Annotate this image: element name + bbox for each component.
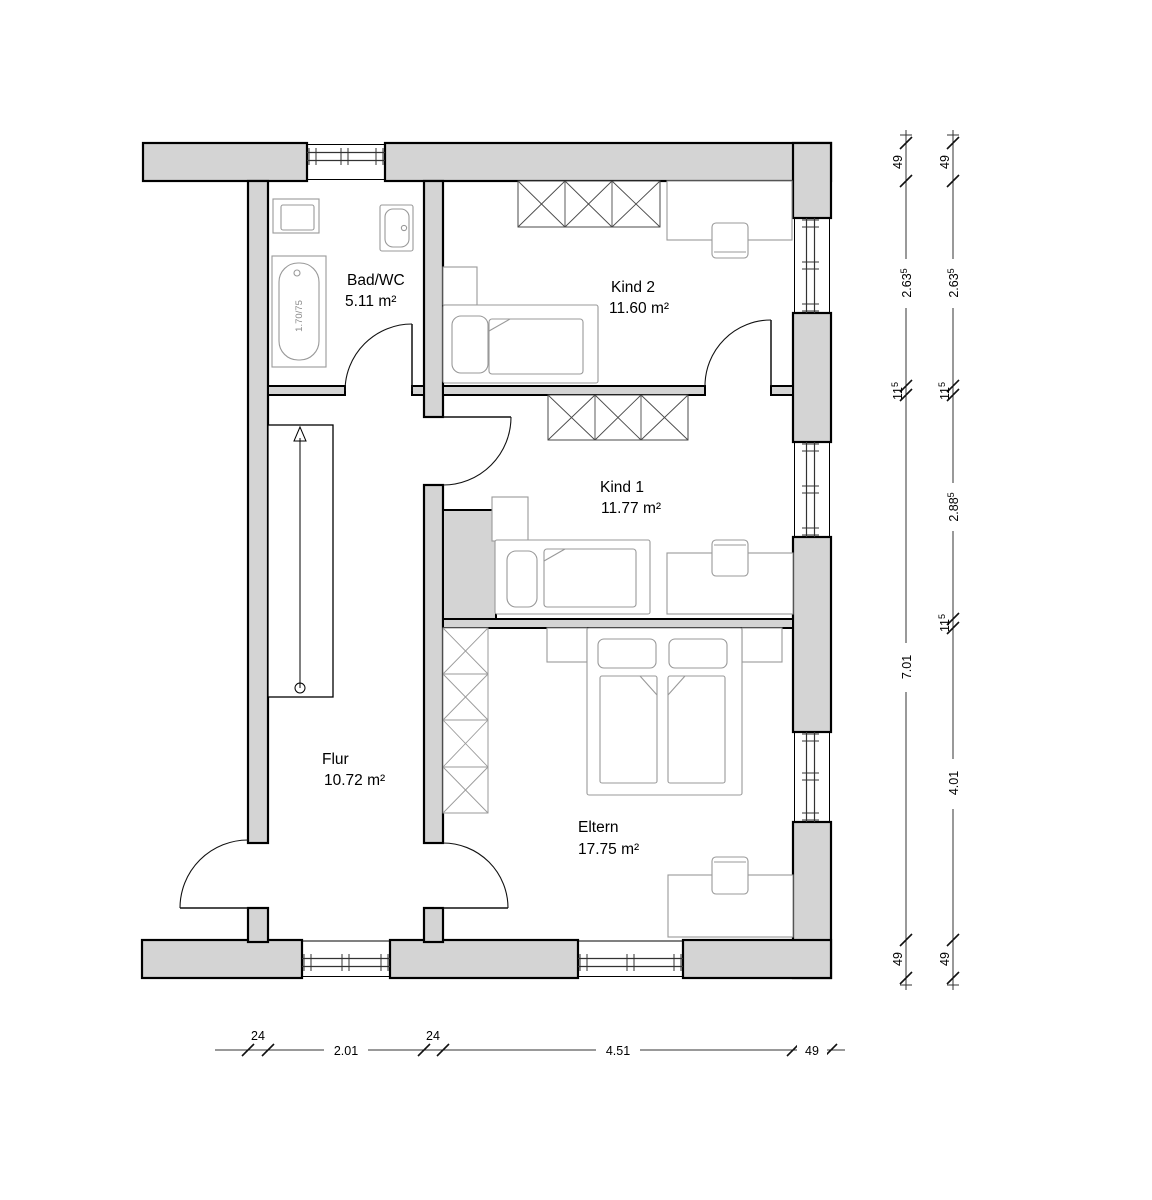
floor-plan-page: 1.70/75	[0, 0, 1152, 1200]
dimension-chain-right-outer: 49 2.635 115 2.885 115 4.01 49	[937, 130, 962, 990]
dim-inner-115: 115	[890, 382, 905, 400]
door-badwc	[345, 324, 412, 391]
wall-top-left	[143, 143, 307, 181]
dim-outer-115-upper: 115	[937, 382, 952, 400]
door-kind1	[443, 417, 511, 485]
wardrobe	[518, 181, 660, 227]
window-top	[307, 145, 385, 180]
room-label-kind1: Kind 1	[600, 479, 644, 496]
dim-outer-49-top: 49	[938, 155, 952, 169]
dim-bottom-24-right: 24	[426, 1029, 440, 1043]
room-area-kind1: 11.77 m²	[601, 500, 661, 517]
partition-kind1-eltern	[443, 619, 793, 628]
room-label-badwc: Bad/WC	[347, 272, 405, 289]
dim-outer-49-bottom: 49	[938, 952, 952, 966]
wall-bottom-left	[142, 940, 302, 978]
dim-bottom-451: 4.51	[606, 1044, 630, 1058]
partition-kind2-kind1-stub	[771, 386, 793, 395]
wall-center-stub	[424, 908, 443, 942]
door-kind2	[705, 320, 771, 386]
room-area-kind2: 11.60 m²	[609, 300, 669, 317]
dim-inner-701: 7.01	[900, 655, 914, 679]
dim-inner-49-top: 49	[891, 155, 905, 169]
window-kind2	[795, 218, 830, 313]
wall-bottom-middle	[390, 940, 578, 978]
bathtub-size-label: 1.70/75	[294, 300, 305, 332]
floor-plan-drawing: 1.70/75	[0, 0, 1152, 1200]
dim-bottom-49: 49	[805, 1044, 819, 1058]
double-bed	[587, 628, 742, 795]
window-bottom-left	[302, 941, 390, 977]
room-area-badwc: 5.11 m²	[345, 293, 396, 310]
partition-kind2-kind1	[443, 386, 705, 395]
desk	[667, 181, 792, 258]
room-label-flur: Flur	[322, 751, 349, 768]
window-kind1	[795, 442, 830, 537]
toilet	[380, 205, 413, 251]
washbasin	[273, 199, 319, 233]
wall-top-right	[385, 143, 831, 181]
wall-left-stub	[248, 908, 268, 942]
dim-inner-49-bottom: 49	[891, 952, 905, 966]
dimension-chain-bottom: 24 2.01 24 4.51 49	[215, 1029, 845, 1059]
wall-right-seg1	[793, 143, 831, 218]
window-eltern	[795, 732, 830, 822]
room-area-eltern: 17.75 m²	[578, 841, 639, 858]
door-flur-left	[180, 840, 248, 908]
eltern-furniture	[443, 628, 793, 937]
wall-right-seg3	[793, 537, 831, 732]
nightstand	[492, 497, 528, 541]
door-eltern	[443, 843, 508, 908]
partition-badwc-stub	[412, 386, 424, 395]
wall-right-seg2	[793, 313, 831, 442]
window-bottom-right	[578, 941, 683, 977]
wall-center-lower	[424, 485, 443, 843]
bathtub: 1.70/75	[272, 256, 326, 367]
stairwell	[268, 425, 333, 697]
dim-outer-115-lower: 115	[937, 614, 952, 632]
bed	[443, 305, 598, 383]
dim-bottom-24-left: 24	[251, 1029, 265, 1043]
nightstand-left	[547, 628, 587, 662]
bed	[495, 540, 650, 614]
wall-bottom-right	[683, 940, 831, 978]
dimension-chain-right-inner: 49 2.635 115 7.01 49	[890, 130, 915, 990]
desk	[668, 857, 793, 937]
wall-center-upper	[424, 181, 443, 417]
desk	[667, 540, 793, 614]
dim-bottom-201: 2.01	[334, 1044, 358, 1058]
dim-outer-401: 4.01	[947, 771, 961, 795]
nightstand-right	[742, 628, 782, 662]
room-area-flur: 10.72 m²	[324, 772, 385, 789]
chimney-block	[443, 510, 496, 619]
room-label-kind2: Kind 2	[611, 279, 655, 296]
nightstand	[443, 267, 477, 305]
wardrobe	[443, 628, 488, 813]
partition-badwc	[268, 386, 345, 395]
wardrobe	[548, 395, 688, 440]
room-label-eltern: Eltern	[578, 819, 619, 836]
wall-left-main	[248, 181, 268, 843]
